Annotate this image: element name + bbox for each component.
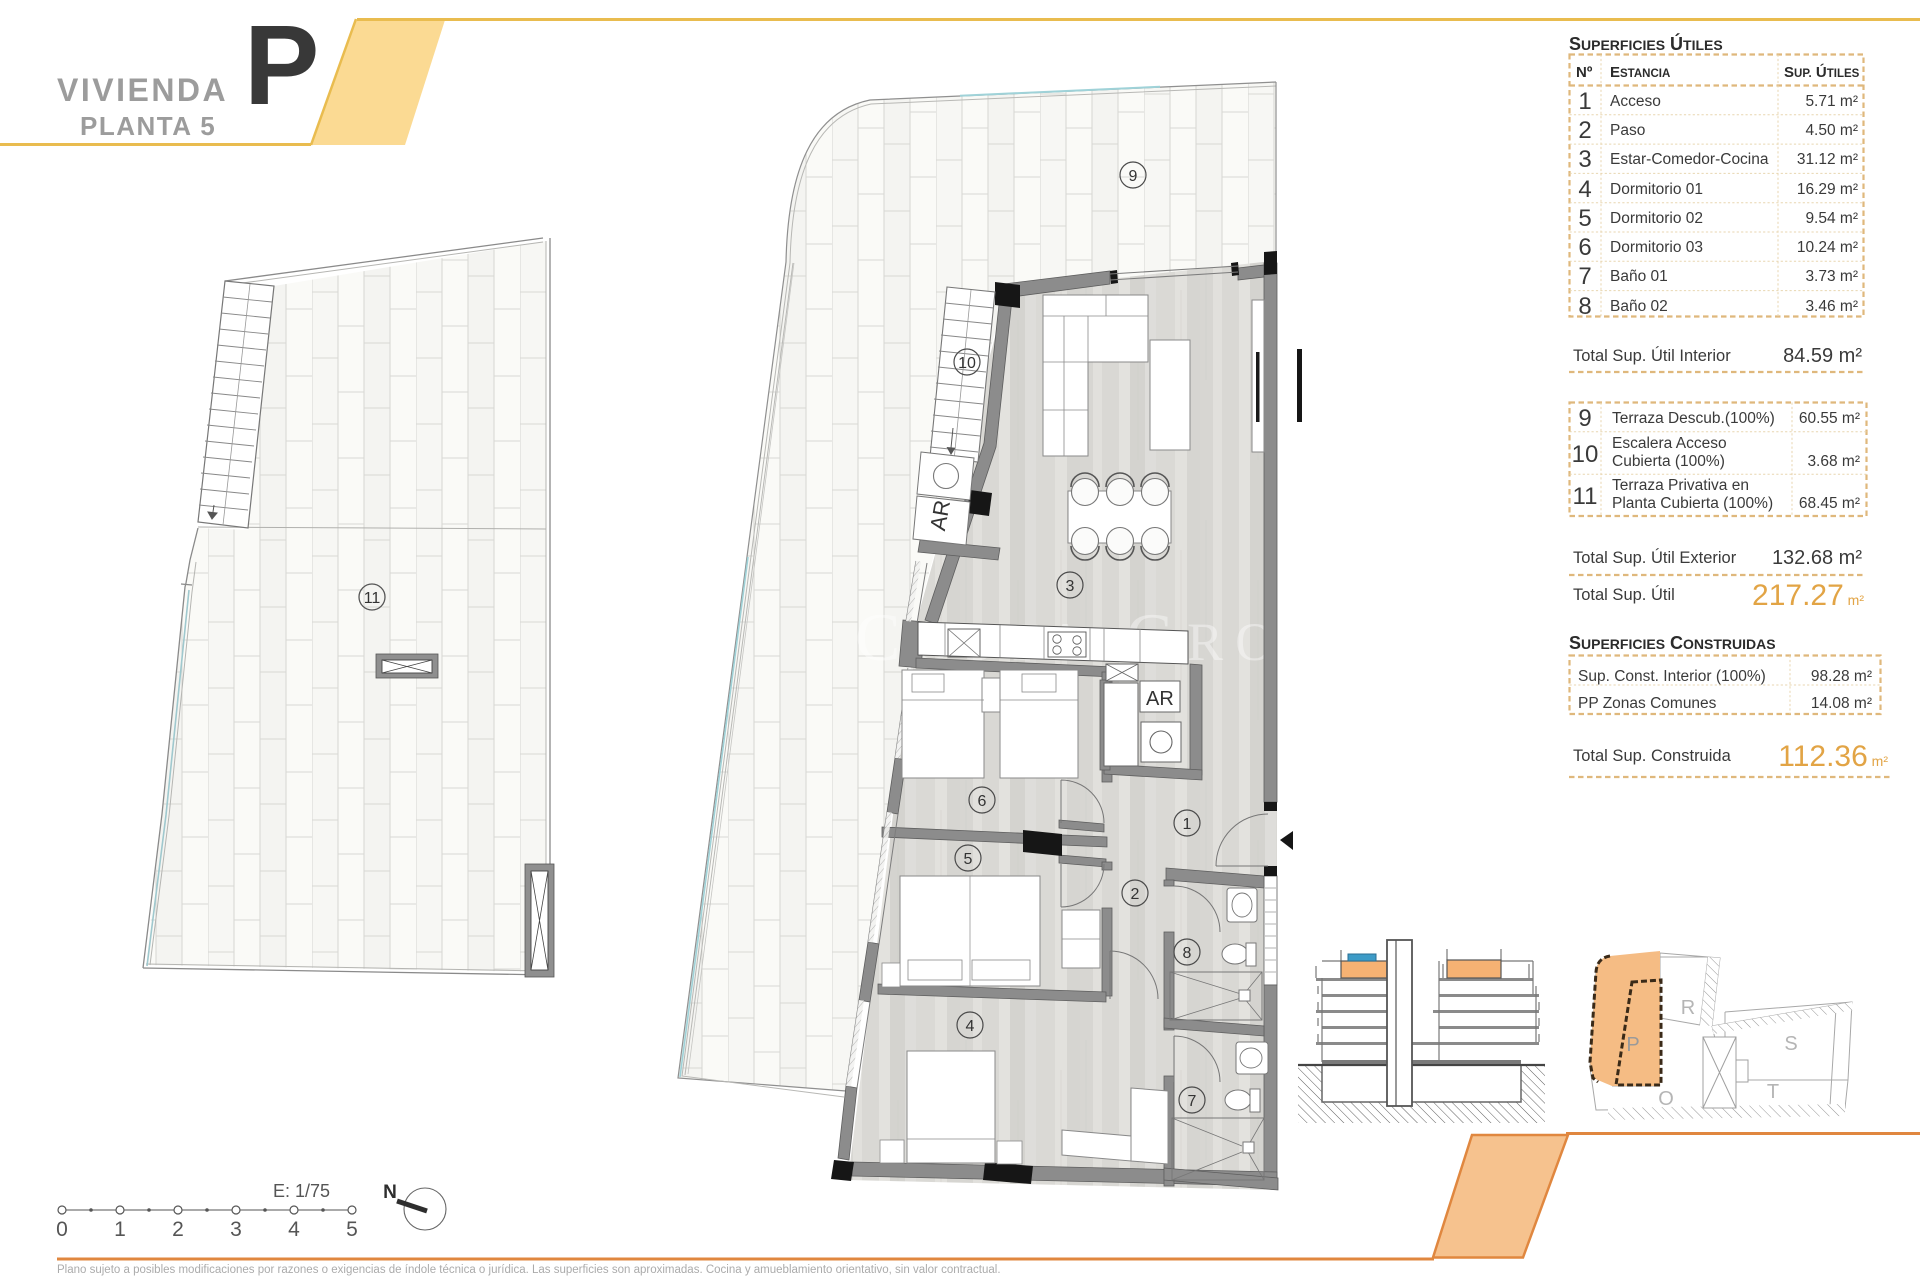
svg-text:10: 10: [958, 355, 976, 372]
svg-text:4: 4: [1578, 176, 1591, 203]
svg-text:Total Sup. Útil: Total Sup. Útil: [1573, 585, 1675, 604]
svg-text:ESTANCIA: ESTANCIA: [1610, 64, 1670, 81]
svg-text:P: P: [1626, 1034, 1639, 1056]
svg-text:11: 11: [1573, 483, 1598, 510]
svg-text:R: R: [1681, 997, 1695, 1019]
svg-text:1: 1: [114, 1218, 126, 1241]
svg-text:31.12 m²: 31.12 m²: [1797, 151, 1858, 168]
svg-text:Planta Cubierta (100%): Planta Cubierta (100%): [1612, 495, 1773, 512]
svg-text:5: 5: [964, 851, 973, 868]
svg-text:7: 7: [1578, 263, 1591, 290]
svg-text:14.08 m²: 14.08 m²: [1811, 695, 1872, 712]
svg-text:PLANTA 5: PLANTA 5: [80, 111, 216, 141]
svg-text:112.36 m²: 112.36 m²: [1778, 740, 1888, 773]
svg-text:Paso: Paso: [1610, 122, 1645, 139]
svg-text:Dormitorio 01: Dormitorio 01: [1610, 181, 1703, 198]
svg-text:O: O: [1658, 1088, 1674, 1110]
svg-text:P: P: [244, 2, 319, 128]
svg-text:Total Sup. Construida: Total Sup. Construida: [1573, 747, 1732, 765]
svg-text:Escalera Acceso: Escalera Acceso: [1612, 435, 1727, 452]
svg-text:Total Sup. Útil Exterior: Total Sup. Útil Exterior: [1573, 548, 1737, 567]
svg-text:5: 5: [346, 1218, 358, 1241]
svg-text:0: 0: [56, 1218, 68, 1241]
svg-text:Baño 02: Baño 02: [1610, 298, 1668, 315]
svg-text:SUPERFICIES ÚTILES: SUPERFICIES ÚTILES: [1569, 33, 1723, 54]
svg-text:3.46 m²: 3.46 m²: [1805, 298, 1858, 315]
svg-text:2: 2: [172, 1218, 184, 1241]
svg-text:2: 2: [1578, 117, 1591, 144]
svg-text:T: T: [1767, 1081, 1779, 1103]
svg-text:Estar-Comedor-Cocina: Estar-Comedor-Cocina: [1610, 151, 1769, 168]
svg-text:Terraza Privativa en: Terraza Privativa en: [1612, 477, 1749, 494]
svg-text:9: 9: [1578, 405, 1591, 432]
svg-text:10.24 m²: 10.24 m²: [1797, 239, 1858, 256]
svg-text:3.68 m²: 3.68 m²: [1807, 453, 1860, 470]
svg-text:Total Sup. Útil Interior: Total Sup. Útil Interior: [1573, 346, 1731, 365]
svg-text:8: 8: [1578, 293, 1591, 320]
svg-text:4.50 m²: 4.50 m²: [1805, 122, 1858, 139]
svg-text:11: 11: [364, 590, 381, 607]
svg-text:10: 10: [1572, 441, 1599, 468]
svg-text:98.28 m²: 98.28 m²: [1811, 668, 1872, 685]
svg-text:Nº: Nº: [1576, 64, 1593, 81]
svg-text:VIVIENDA: VIVIENDA: [57, 72, 228, 108]
svg-text:Dormitorio 02: Dormitorio 02: [1610, 210, 1703, 227]
svg-text:Terraza Descub.(100%): Terraza Descub.(100%): [1612, 410, 1775, 427]
svg-text:1: 1: [1183, 816, 1192, 833]
svg-text:8: 8: [1183, 945, 1192, 962]
svg-text:E: 1/75: E: 1/75: [273, 1181, 330, 1201]
svg-text:PP Zonas Comunes: PP Zonas Comunes: [1578, 695, 1717, 712]
svg-text:6: 6: [1578, 234, 1591, 261]
svg-text:9: 9: [1129, 168, 1138, 185]
svg-text:5: 5: [1578, 205, 1591, 232]
svg-text:132.68 m²: 132.68 m²: [1772, 547, 1862, 569]
svg-text:Dormitorio 03: Dormitorio 03: [1610, 239, 1703, 256]
svg-text:6: 6: [978, 793, 987, 810]
svg-text:AR: AR: [925, 498, 955, 532]
svg-text:9.54 m²: 9.54 m²: [1805, 210, 1858, 227]
svg-text:2: 2: [1131, 886, 1140, 903]
svg-text:60.55 m²: 60.55 m²: [1799, 410, 1860, 427]
svg-text:4: 4: [966, 1018, 975, 1035]
svg-text:3: 3: [1066, 578, 1075, 595]
svg-text:217.27 m²: 217.27 m²: [1752, 579, 1864, 612]
svg-text:S: S: [1784, 1033, 1797, 1055]
svg-text:4: 4: [288, 1218, 300, 1241]
svg-text:3.73 m²: 3.73 m²: [1805, 268, 1858, 285]
svg-text:16.29 m²: 16.29 m²: [1797, 181, 1858, 198]
svg-text:SUP. ÚTILES: SUP. ÚTILES: [1784, 63, 1860, 81]
svg-text:5.71 m²: 5.71 m²: [1805, 93, 1858, 110]
svg-text:Baño 01: Baño 01: [1610, 268, 1668, 285]
svg-text:AR: AR: [1146, 688, 1174, 710]
svg-text:Plano sujeto a posibles modifi: Plano sujeto a posibles modificaciones p…: [57, 1264, 1001, 1276]
svg-text:7: 7: [1188, 1093, 1197, 1110]
svg-text:1: 1: [1578, 88, 1591, 115]
svg-text:Cubierta (100%): Cubierta (100%): [1612, 453, 1725, 470]
svg-text:84.59 m²: 84.59 m²: [1783, 345, 1862, 367]
svg-text:N: N: [383, 1182, 397, 1203]
svg-text:Sup. Const. Interior (100%): Sup. Const. Interior (100%): [1578, 668, 1766, 685]
svg-text:Acceso: Acceso: [1610, 93, 1661, 110]
svg-text:3: 3: [230, 1218, 242, 1241]
svg-text:68.45 m²: 68.45 m²: [1799, 495, 1860, 512]
svg-text:SUPERFICIES CONSTRUIDAS: SUPERFICIES CONSTRUIDAS: [1569, 633, 1776, 653]
svg-text:3: 3: [1578, 146, 1591, 173]
